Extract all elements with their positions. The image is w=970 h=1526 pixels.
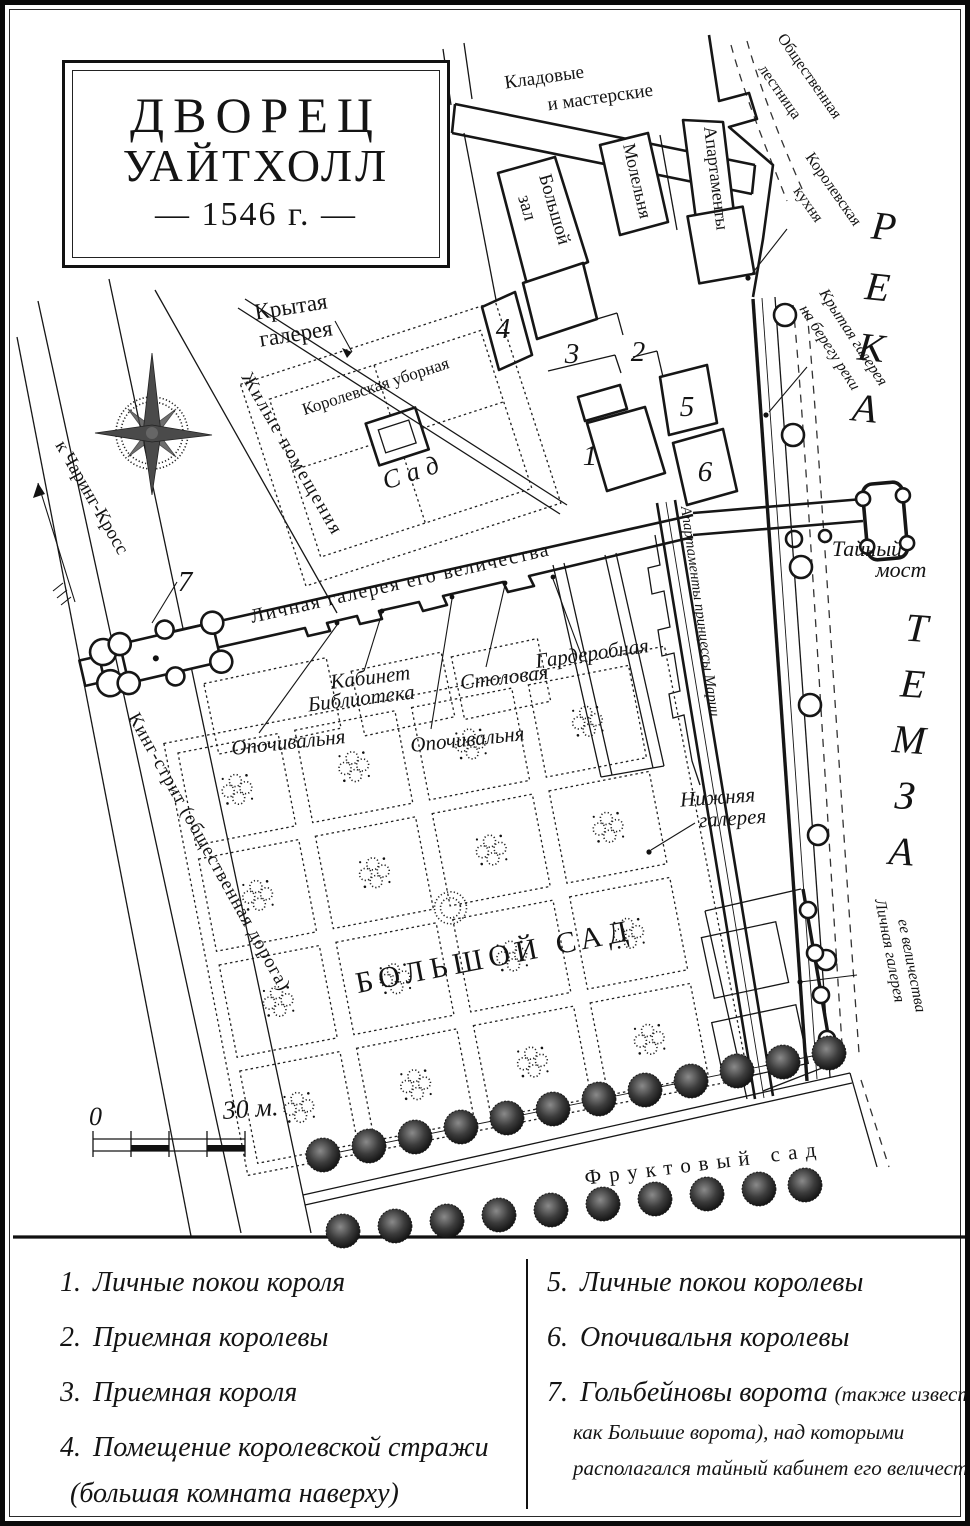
scale-zero-label: 0 bbox=[89, 1102, 102, 1131]
title-cartouche: ДВОРЕЦ УАЙТХОЛЛ — 1546 г. — bbox=[62, 60, 450, 268]
royal-closet-label: Королевская уборная bbox=[300, 353, 452, 418]
legend-text-7: Гольбейновы ворота bbox=[580, 1377, 828, 1408]
legend-num-1: 1. bbox=[60, 1267, 81, 1298]
legend-note-7a: как Большие ворота), над которыми bbox=[573, 1420, 904, 1444]
legend-text-3: Приемная короля bbox=[93, 1377, 297, 1408]
library-label: Библиотека bbox=[305, 680, 415, 717]
legend-item-3: 3.Приемная короля bbox=[60, 1377, 297, 1409]
scale-thirty-label: 30 м. bbox=[221, 1092, 279, 1125]
legend-text-5: Личные покои королевы bbox=[580, 1267, 863, 1298]
holbein-gate bbox=[75, 608, 235, 706]
legend-item-6: 6.Опочивальня королевы bbox=[547, 1322, 849, 1354]
compass-rose bbox=[95, 353, 212, 495]
lower-gallery-label-2: галерея bbox=[698, 804, 767, 833]
charing-cross-arrow bbox=[33, 483, 75, 605]
legend-text-4: Помещение королевской стражи bbox=[93, 1432, 489, 1463]
map-number-6: 6 bbox=[698, 456, 713, 488]
bedchamber-label-a: Опочивальня bbox=[230, 724, 346, 760]
secret-bridge-label-2: мост bbox=[875, 557, 927, 582]
storerooms-label-1: Кладовые bbox=[503, 62, 585, 94]
title-line-3: — 1546 г. — bbox=[155, 193, 357, 237]
king-street-road bbox=[17, 279, 337, 1236]
great-garden-label: БОЛЬШОЙ САД bbox=[353, 914, 637, 1000]
map-number-2: 2 bbox=[631, 336, 646, 368]
wardrobe-label: Гардеробная bbox=[533, 633, 651, 673]
legend-item-5: 5.Личные покои королевы bbox=[547, 1267, 863, 1299]
map-number-1: 1 bbox=[583, 440, 598, 472]
legend-num-2: 2. bbox=[60, 1322, 81, 1353]
map-number-5: 5 bbox=[680, 391, 695, 423]
map-number-4: 4 bbox=[496, 313, 511, 345]
charing-cross-label: к Чаринг-Кросс bbox=[51, 437, 133, 558]
legend-note-4: (большая комната наверху) bbox=[70, 1478, 399, 1509]
legend-num-7: 7. bbox=[547, 1377, 568, 1408]
legend-item-4: 4.Помещение королевской стражи bbox=[60, 1432, 489, 1464]
legend-divider bbox=[526, 1259, 528, 1509]
legend-num-5: 5. bbox=[547, 1267, 568, 1298]
legend-num-4: 4. bbox=[60, 1432, 81, 1463]
legend-num-6: 6. bbox=[547, 1322, 568, 1353]
legend-item-7-line3: располагался тайный кабинет его величест… bbox=[573, 1456, 970, 1481]
legend-item-1: 1.Личные покои короля bbox=[60, 1267, 345, 1299]
legend-item-7: 7.Гольбейновы ворота (также известные bbox=[547, 1377, 970, 1409]
legend-text-6: Опочивальня королевы bbox=[580, 1322, 849, 1353]
whitehall-map-page: Королевская уборная Сад bbox=[0, 0, 970, 1526]
legend-text-2: Приемная королевы bbox=[93, 1322, 329, 1353]
legend-note-7b: располагался тайный кабинет его величест… bbox=[573, 1456, 970, 1480]
legend-text-1: Личные покои короля bbox=[93, 1267, 345, 1298]
legend-item-7-line2: как Большие ворота), над которыми bbox=[573, 1420, 904, 1445]
legend-text-7-suffix: (также известные bbox=[835, 1382, 970, 1406]
title-line-1: ДВОРЕЦ bbox=[130, 90, 382, 140]
legend-item-4-note: (большая комната наверху) bbox=[70, 1478, 399, 1510]
title-line-2: УАЙТХОЛЛ bbox=[123, 140, 390, 193]
map-number-7: 7 bbox=[178, 566, 194, 598]
kitchen-label-2: кухня bbox=[790, 184, 827, 227]
map-number-3: 3 bbox=[564, 338, 580, 370]
legend-num-3: 3. bbox=[60, 1377, 81, 1408]
legend-item-2: 2.Приемная королевы bbox=[60, 1322, 329, 1354]
